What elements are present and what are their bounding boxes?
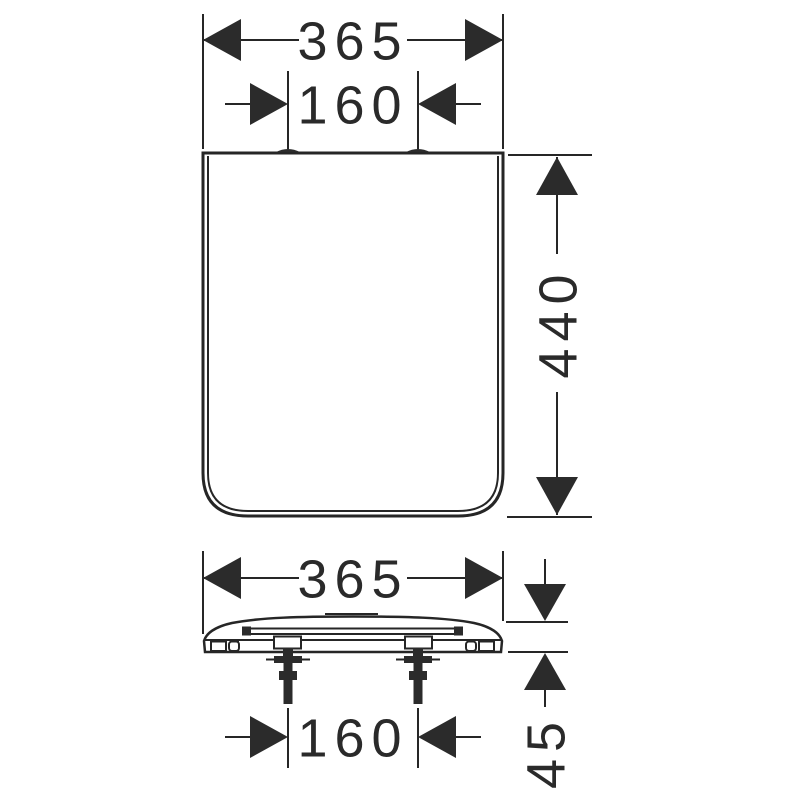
arrowhead-up-icon (524, 653, 566, 690)
dimension-front-hinge-spacing: 160 (225, 708, 481, 768)
bumper-right-inner (466, 642, 476, 652)
dimension-value: 365 (297, 549, 408, 609)
bolt-shaft (284, 663, 293, 704)
arrowhead-down-icon (524, 584, 566, 621)
bumper-left-inner (229, 642, 239, 652)
dimension-value: 45 (516, 715, 576, 789)
hinge-bump-right (406, 149, 430, 152)
dimension-value: 365 (297, 11, 408, 71)
bolt-flange (274, 656, 302, 663)
technical-drawing: 365 160 440 (0, 0, 800, 800)
slot-end-cap-right (454, 627, 463, 636)
arrowhead-up-icon (536, 157, 578, 195)
bolt-nut (279, 671, 297, 680)
arrowhead-right-icon (465, 19, 503, 61)
arrowhead-left-icon (203, 557, 241, 599)
bolt-nut (409, 671, 427, 680)
arrowhead-right-icon (250, 716, 288, 758)
bolt-flange (404, 656, 432, 663)
seat-outline-outer (203, 153, 503, 516)
front-view (204, 614, 502, 704)
dimension-value: 160 (297, 75, 408, 135)
dimension-plan-depth: 440 (507, 155, 592, 517)
arrowhead-right-icon (465, 557, 503, 599)
slot-end-cap-left (242, 627, 251, 636)
bumper-left-outer (211, 642, 226, 652)
arrowhead-left-icon (418, 83, 456, 125)
arrowhead-right-icon (250, 83, 288, 125)
dimension-front-height: 45 (506, 559, 576, 789)
fixing-bolt-left (266, 648, 310, 704)
fixing-bolt-right (396, 648, 440, 704)
hinge-block-left (274, 637, 301, 649)
drawing-canvas: 365 160 440 (0, 0, 800, 800)
bumper-right-outer (479, 642, 494, 652)
hinge-bump-left (276, 149, 300, 152)
bolt-shaft (414, 663, 423, 704)
arrowhead-left-icon (418, 716, 456, 758)
plan-view (203, 149, 503, 516)
hinge-block-right (405, 637, 432, 649)
dimension-plan-hinge-spacing: 160 (225, 71, 481, 149)
arrowhead-left-icon (203, 19, 241, 61)
seat-outline-inner (208, 156, 498, 511)
dimension-value: 160 (297, 708, 408, 768)
arrowhead-down-icon (536, 477, 578, 515)
dimension-value: 440 (528, 267, 588, 378)
